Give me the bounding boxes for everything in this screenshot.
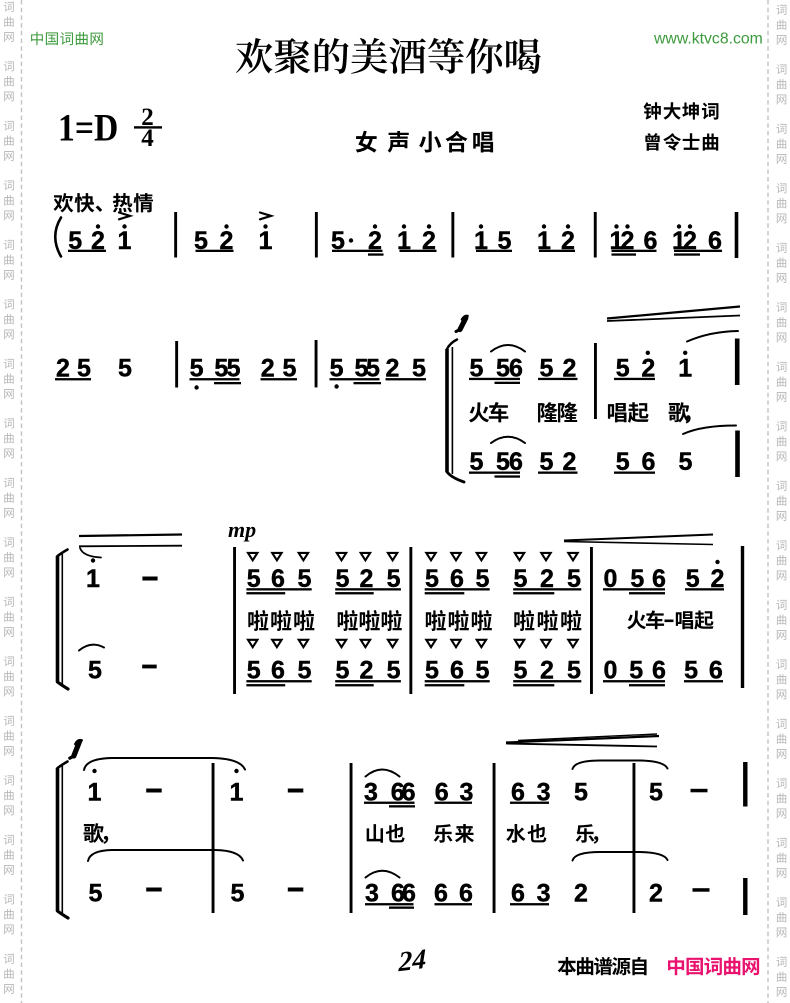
svg-text:2: 2	[649, 880, 663, 908]
svg-text:1: 1	[678, 355, 692, 383]
svg-text:24: 24	[397, 944, 426, 979]
svg-text:2: 2	[574, 880, 588, 908]
svg-text:1: 1	[118, 227, 132, 255]
svg-text:1=D: 1=D	[58, 106, 118, 149]
svg-text:1: 1	[88, 779, 102, 807]
svg-text:5: 5	[574, 779, 588, 807]
svg-text:5: 5	[88, 657, 102, 685]
svg-text:5: 5	[118, 355, 132, 383]
svg-text:1: 1	[86, 565, 100, 593]
svg-text:5: 5	[89, 880, 103, 908]
svg-text:5: 5	[649, 779, 663, 807]
svg-text:1: 1	[259, 227, 273, 255]
svg-text:1: 1	[230, 779, 244, 807]
svg-text:mp: mp	[228, 517, 256, 542]
svg-text:www.ktvc8.com: www.ktvc8.com	[653, 31, 763, 48]
svg-text:5: 5	[231, 880, 245, 908]
svg-text:4: 4	[141, 125, 154, 152]
svg-text:5: 5	[679, 448, 693, 476]
